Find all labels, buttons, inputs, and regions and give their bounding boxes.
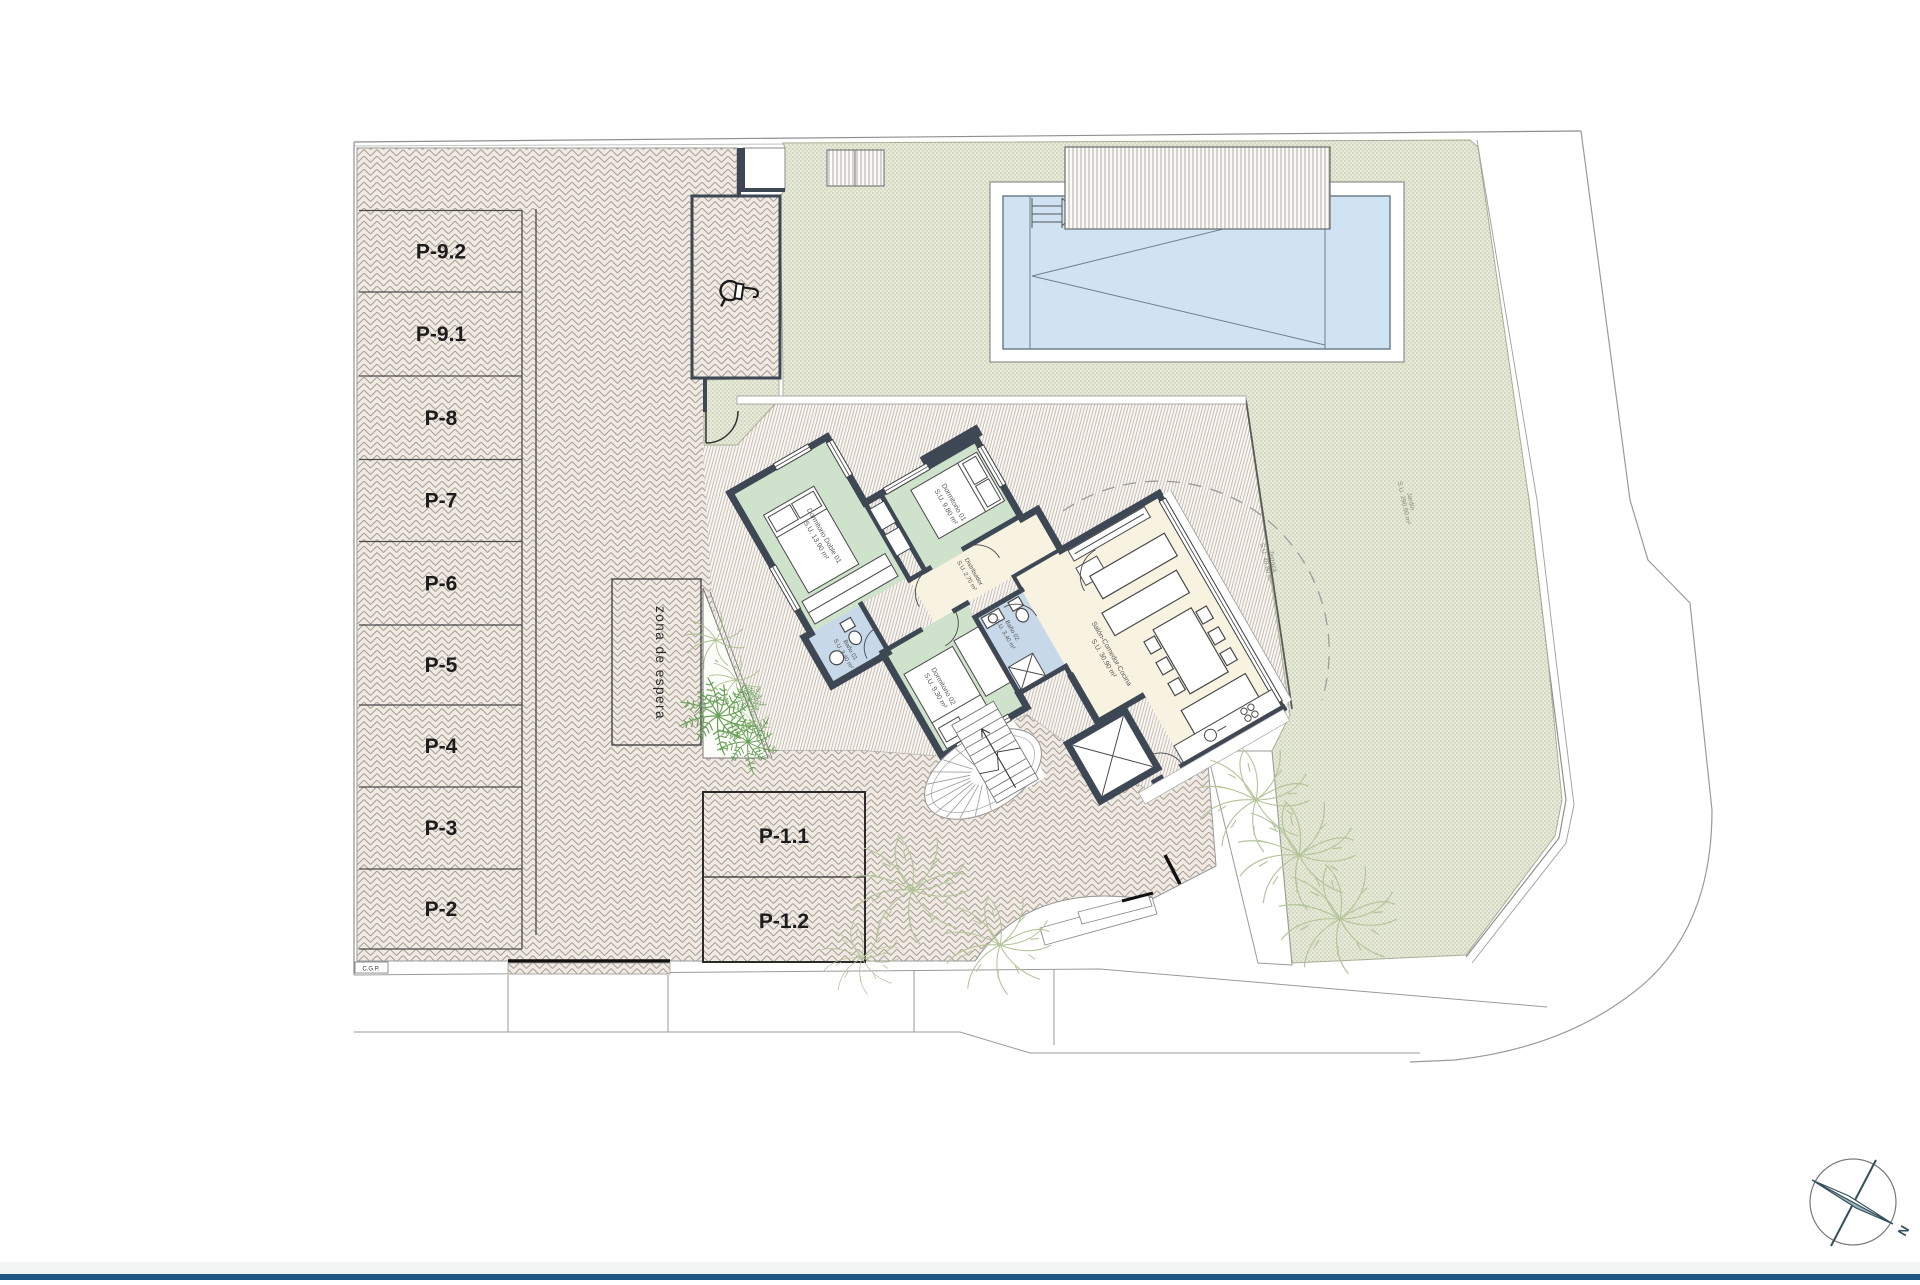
svg-text:P-2: P-2 [425, 898, 458, 921]
svg-text:C.G.P.: C.G.P. [362, 967, 380, 973]
svg-text:P-4: P-4 [425, 735, 458, 758]
svg-text:P-1.2: P-1.2 [759, 910, 809, 933]
svg-text:zona de espera: zona de espera [653, 606, 668, 720]
svg-text:P-6: P-6 [425, 572, 458, 595]
svg-text:P-3: P-3 [425, 817, 458, 840]
svg-text:P-5: P-5 [425, 654, 458, 677]
svg-text:P-9.2: P-9.2 [416, 240, 466, 263]
svg-text:P-8: P-8 [425, 407, 458, 430]
svg-text:P-7: P-7 [425, 490, 458, 513]
svg-text:P-1.1: P-1.1 [759, 825, 810, 848]
svg-text:P-9.1: P-9.1 [416, 323, 467, 346]
